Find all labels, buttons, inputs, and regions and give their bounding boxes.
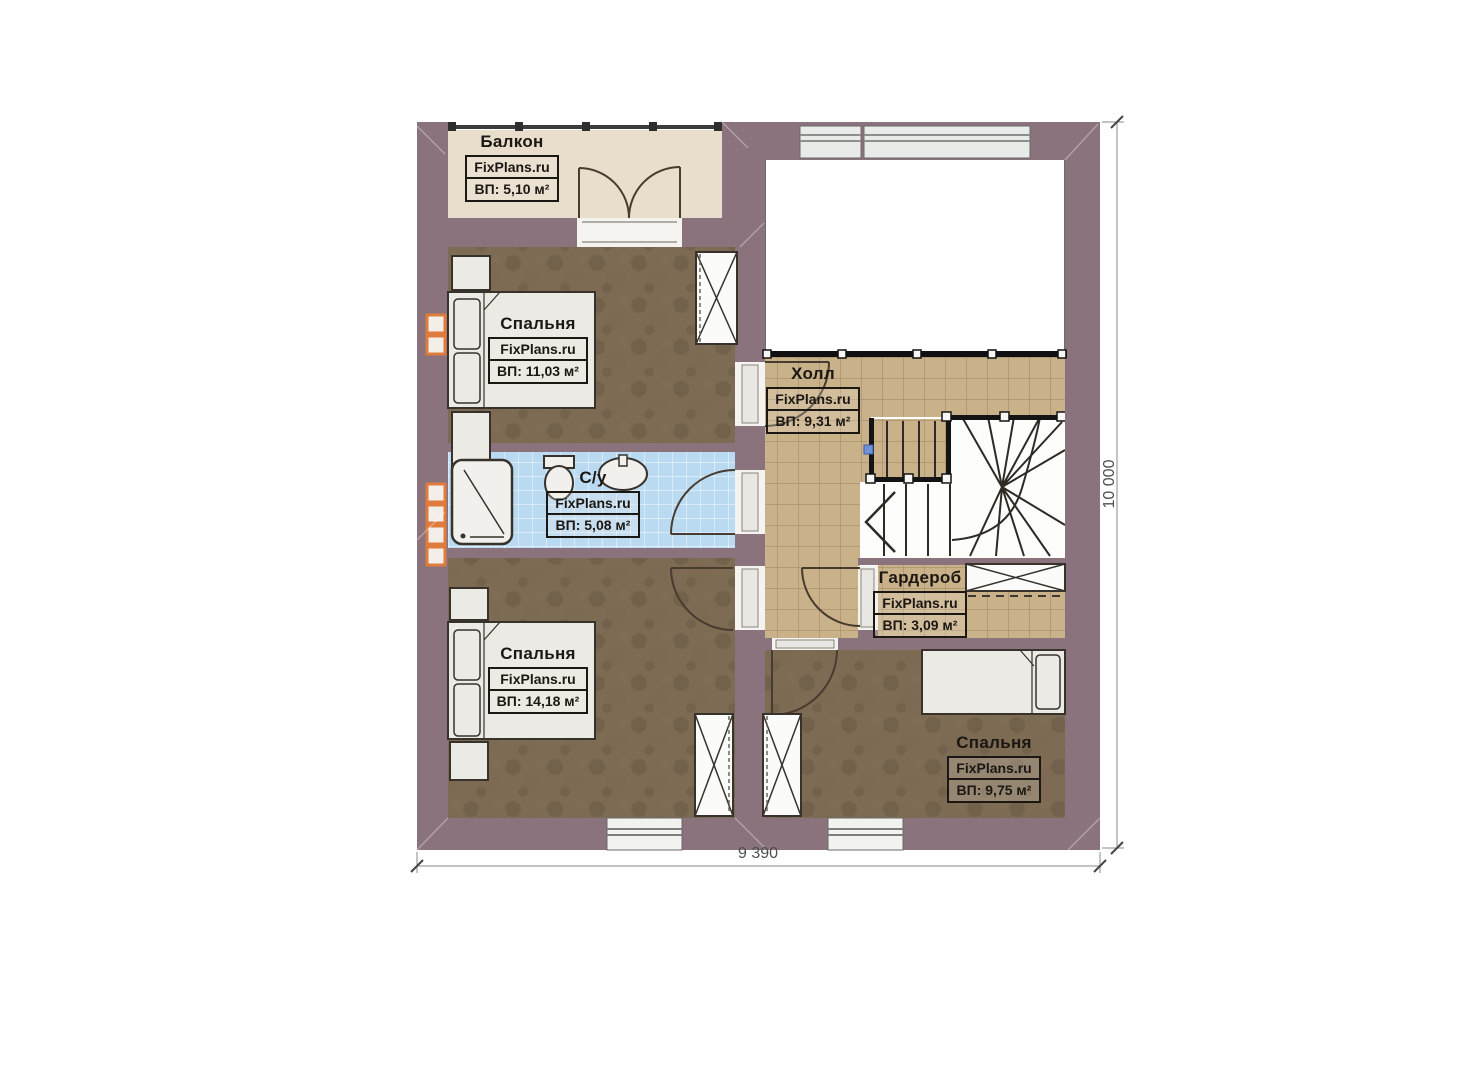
- wall-right-exterior: [1065, 122, 1100, 850]
- cad-vertex-marker: [864, 445, 873, 454]
- void-open-space: [765, 158, 1065, 354]
- pillow: [454, 299, 480, 349]
- balcony-railing: [448, 122, 722, 131]
- wall-bathroom-bedroom2: [448, 548, 735, 558]
- sink-tap: [619, 455, 627, 466]
- nightstand: [450, 742, 488, 780]
- toilet-bowl: [545, 466, 573, 500]
- floor-plan-drawing: [0, 0, 1473, 1080]
- vent-flue: [427, 547, 445, 565]
- nightstand: [450, 588, 488, 620]
- pillow: [454, 684, 480, 736]
- vent-flue: [427, 315, 445, 333]
- vent-flue: [427, 484, 445, 502]
- hall-void-railing: [763, 350, 1067, 358]
- vent-flue: [427, 336, 445, 354]
- pillow: [454, 353, 480, 403]
- dimension-height: 10 000: [1101, 444, 1119, 524]
- stair-well-opening: [871, 419, 949, 481]
- wall-wardrobe-bedroom3: [860, 638, 1065, 650]
- floor-plan-page: Балкон FixPlans.ru ВП: 5,10 м² Спальня F…: [0, 0, 1473, 1080]
- dimension-width: 9 390: [678, 845, 838, 863]
- hall-corridor-floor: [765, 417, 860, 638]
- wall-bedroom1-bathroom: [448, 443, 735, 452]
- nightstand: [452, 256, 490, 290]
- vent-flue: [427, 526, 445, 544]
- pillow: [1036, 655, 1060, 709]
- pillow: [454, 630, 480, 680]
- shower-drain: [461, 534, 466, 539]
